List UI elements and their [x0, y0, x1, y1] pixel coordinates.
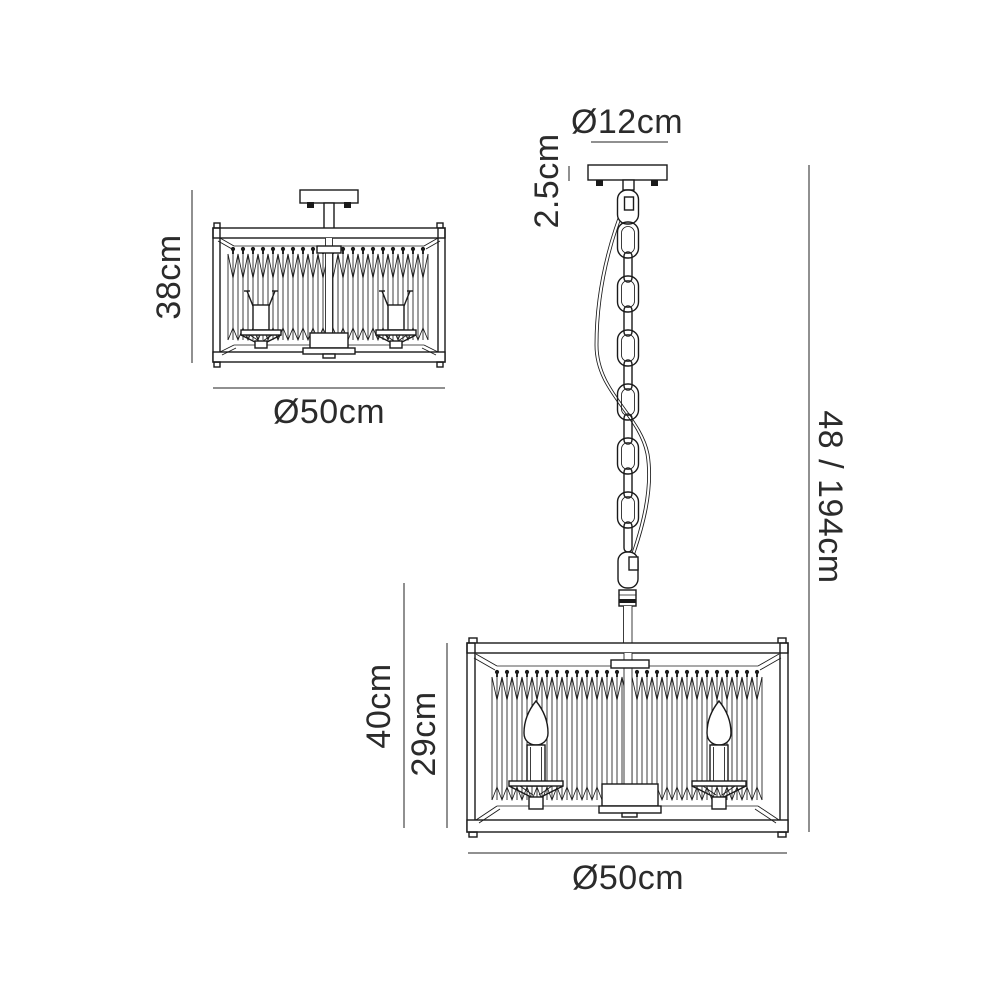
center-rod [624, 653, 632, 784]
frame-foot [469, 832, 477, 837]
corner-brace [220, 238, 234, 246]
canopy-screw [307, 202, 314, 208]
canopy-screw [651, 180, 658, 186]
label-semi-flush-width: Ø50cm [273, 393, 385, 431]
shackle-latch [625, 197, 634, 210]
frame-left-post [467, 643, 475, 832]
drop-rod [624, 606, 633, 643]
rod-collar [317, 246, 341, 253]
center-hub [310, 333, 348, 348]
dimension-diagram: 38cm Ø50cm Ø12cm 2.5cm 48 / 194cm 40cm 2… [0, 0, 1000, 1000]
frame-foot [437, 362, 443, 367]
chain-connector [623, 180, 634, 190]
label-pendant-shade-height: 29cm [405, 691, 443, 776]
label-semi-flush-height: 38cm [150, 234, 188, 319]
semi-flush-fixture-drawing [213, 190, 445, 367]
label-canopy-height: 2.5cm [528, 133, 566, 228]
frame-top-bar [213, 228, 445, 238]
canopy-screw [344, 202, 351, 208]
corner-brace [424, 345, 438, 352]
label-overall-drop: 48 / 194cm [811, 410, 849, 583]
frame-foot [778, 832, 786, 837]
corner-brace [424, 238, 438, 246]
shackle-latch [629, 557, 638, 570]
canopy-plate [300, 190, 358, 203]
canopy-plate [588, 165, 667, 180]
corner-brace [758, 654, 779, 666]
frame-right-post [438, 228, 445, 362]
chain [618, 222, 639, 552]
hub-base-plate [303, 348, 355, 354]
stem [324, 203, 334, 229]
canopy-screw [596, 180, 603, 186]
hub-finial [622, 813, 637, 817]
label-pendant-fixture-height: 40cm [360, 663, 398, 748]
frame-bottom-bar [467, 820, 788, 832]
hub-finial [323, 354, 335, 358]
frame-top-bar [467, 643, 788, 653]
corner-brace [476, 654, 497, 666]
corner-brace [760, 658, 781, 670]
frame-left-post [213, 228, 220, 362]
corner-brace [220, 345, 234, 352]
label-pendant-width: Ø50cm [572, 859, 684, 897]
pendant-fixture-drawing [467, 165, 788, 837]
lighting-dimension-drawing: 38cm Ø50cm Ø12cm 2.5cm 48 / 194cm 40cm 2… [0, 0, 1000, 1000]
label-canopy-diameter: Ø12cm [571, 103, 683, 141]
dimension-labels: 38cm Ø50cm Ø12cm 2.5cm 48 / 194cm 40cm 2… [150, 103, 849, 897]
ferrule [619, 590, 636, 606]
frame-foot [214, 362, 220, 367]
corner-brace [474, 658, 495, 670]
rod-collar [611, 660, 649, 668]
hub-base-plate [599, 806, 661, 813]
center-hub [602, 784, 658, 806]
frame-right-post [780, 643, 788, 832]
ferrule-band [619, 599, 636, 603]
